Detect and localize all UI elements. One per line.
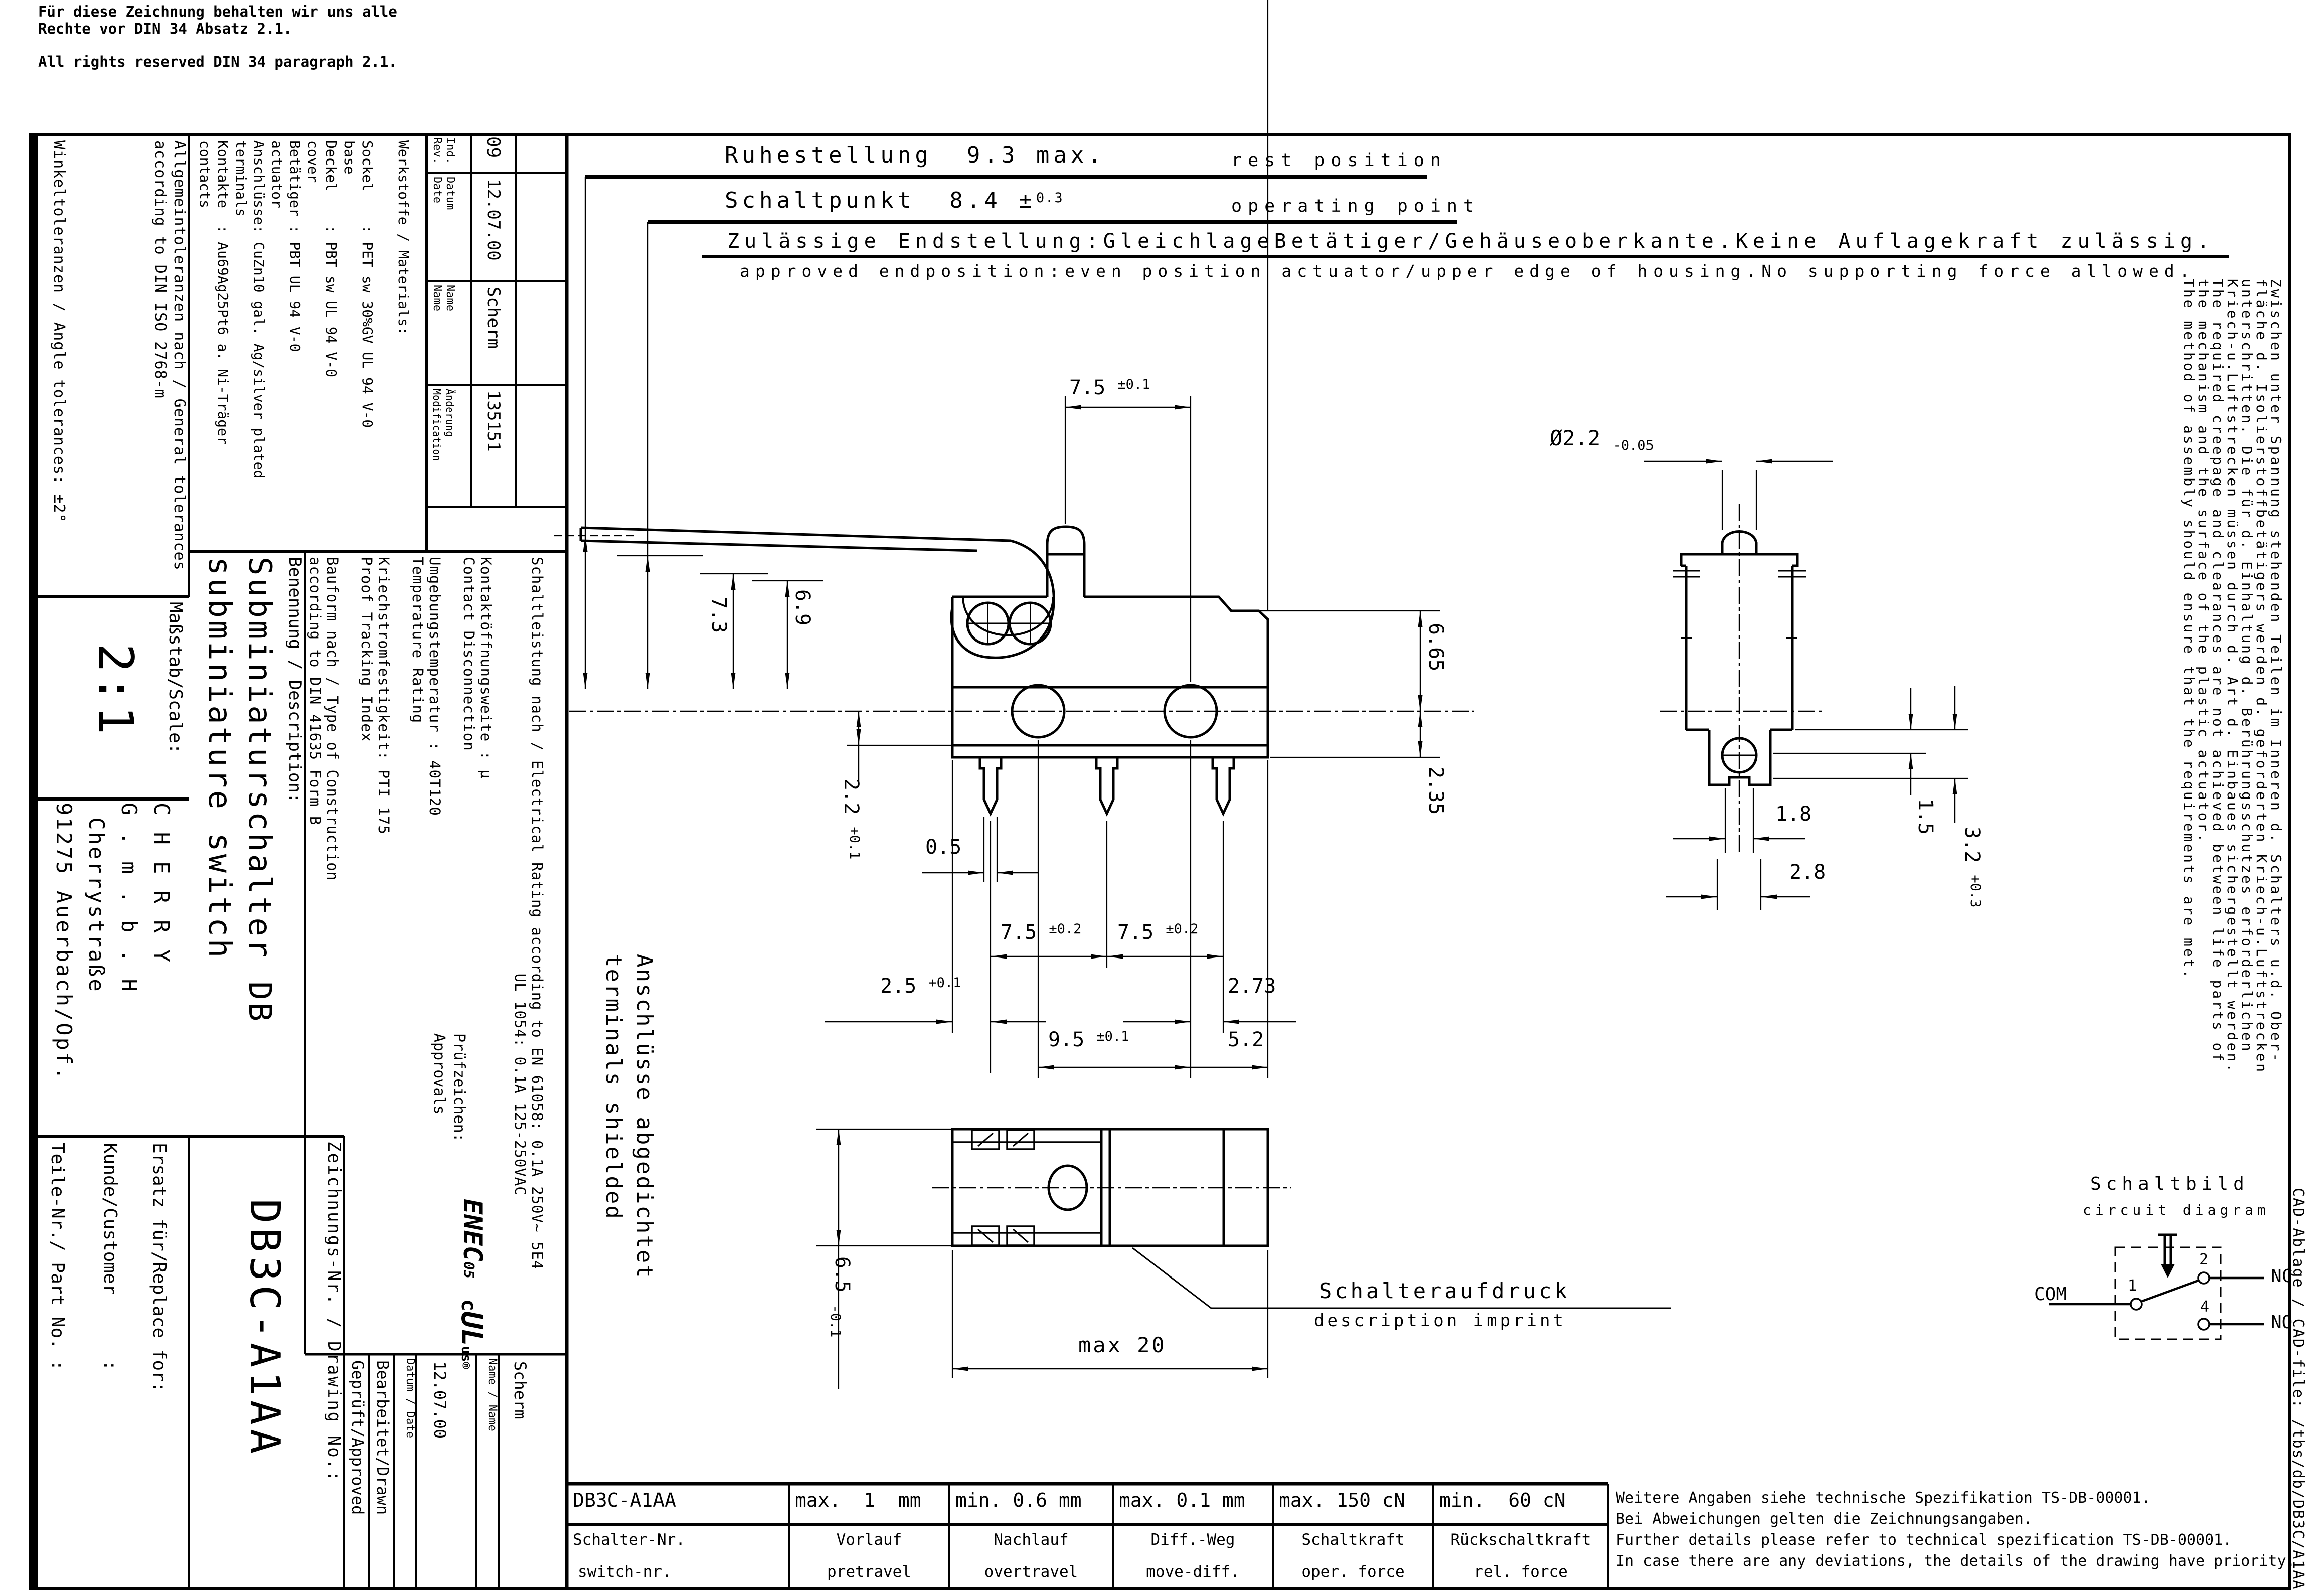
dim-2.5: 2.5 +0.1 <box>880 976 961 997</box>
spec-col4-header-en: move-diff. <box>1113 1564 1273 1580</box>
imprint-label-en: description imprint <box>1314 1312 1566 1330</box>
spec-col4-header-de: Diff.-Weg <box>1113 1532 1273 1548</box>
copyright-de-line1: Für diese Zeichnung behalten wir uns all… <box>38 4 397 19</box>
dim-2.73: 2.73 <box>1228 976 1276 997</box>
revision-name-label: Name Name <box>430 285 456 380</box>
drawn-name-value: Scherm <box>502 1361 530 1472</box>
engineering-drawing-page: { "copyright":{ "de1":"Für diese Zeichnu… <box>0 0 2308 1596</box>
dim-2.8: 2.8 <box>1789 862 1826 883</box>
part-no-label: Teile-Nr./ Part No. : <box>48 1143 68 1544</box>
dim-2.2: 2.2 +0.1 <box>834 778 863 929</box>
spec-col6-header-en: rel. force <box>1433 1564 1608 1580</box>
spec-col2-header-en: pretravel <box>789 1564 949 1580</box>
dim-dia-2.2: Ø2.2 -0.05 <box>1550 427 1654 449</box>
creepage-note: Zwischen unter Spannung stehenden Teilen… <box>2181 279 2283 1132</box>
approved-by-label: Geprüft/Approved <box>345 1360 367 1586</box>
endposition-note-de: Zulässige Endstellung:GleichlageBetätige… <box>727 231 2214 252</box>
company-address: C H E R R Y G . m . b . H Cherrystraße 9… <box>48 803 178 1129</box>
date-header: Datum / Date <box>396 1358 416 1484</box>
dim-max-20: max 20 <box>1078 1334 1167 1356</box>
circuit-title-de: Schaltbild <box>2090 1175 2249 1194</box>
dim-7.5-0.1: 7.5 ±0.1 <box>1069 377 1150 398</box>
circuit-diagram-lines <box>2049 1235 2264 1339</box>
spec-col6-header-de: Rückschaltkraft <box>1433 1532 1608 1548</box>
name-header: Name / Name <box>478 1358 499 1484</box>
spec-col3-header-de: Nachlauf <box>949 1532 1113 1548</box>
rest-position-label-de: Ruhestellung 9.3 max. <box>725 144 1105 167</box>
spec-switch-no-value: DB3C-A1AA <box>573 1491 676 1511</box>
spec-col1-header-de: Schalter-Nr. <box>573 1532 685 1548</box>
replace-for-label: Ersatz für/Replace for: <box>149 1143 170 1544</box>
bottom-witness-lines <box>816 1129 1268 1389</box>
dim-6.65: 6.65 <box>1423 623 1447 703</box>
revision-date-value: 12.07.00 <box>473 179 504 279</box>
approvals-label: Prüfzeichen: Approvals <box>429 1033 469 1194</box>
dim-0.5: 0.5 <box>925 837 961 858</box>
general-tolerances-note: Allgemeintoleranzen nach / General toler… <box>150 140 189 594</box>
technical-spec-note: Weitere Angaben siehe technische Spezifi… <box>1616 1488 2295 1572</box>
operating-point-label-de: Schaltpunkt 8.4 ±0.3 <box>725 189 1064 212</box>
operating-point-tolerance: 0.3 <box>1036 190 1064 206</box>
customer-label: Kunde/Customer : <box>100 1143 120 1544</box>
spec-col5-header-en: oper. force <box>1273 1564 1433 1580</box>
circuit-terminal-2: 2 <box>2199 1252 2208 1268</box>
spec-col5-header-de: Schaltkraft <box>1273 1532 1433 1548</box>
spec-col3-header-en: overtravel <box>949 1564 1113 1580</box>
circuit-terminal-1: 1 <box>2128 1278 2137 1294</box>
circuit-com-label: COM <box>2034 1285 2067 1304</box>
spec-overtravel-value: min. 0.6 mm <box>955 1491 1082 1511</box>
dim-7.5-0.2-a: 7.5 ±0.2 <box>1001 922 1081 943</box>
spec-relforce-value: min. 60 cN <box>1439 1491 1566 1511</box>
operating-point-label-en: operating point <box>1231 197 1480 216</box>
spec-col2-header-de: Vorlauf <box>789 1532 949 1548</box>
dim-9.5: 9.5 ±0.1 <box>1048 1029 1129 1050</box>
angle-tolerances-note: Winkeltoleranzen / Angle tolerances: ±2° <box>48 140 68 642</box>
part-title: Subminiaturschalter DB subminiature swit… <box>200 557 280 1108</box>
description-label: Benennung / Description: <box>286 557 305 873</box>
copyright-en: All rights reserved DIN 34 paragraph 2.1… <box>38 54 397 69</box>
revision-mod-value: 135151 <box>473 390 504 503</box>
dim-3.2: 3.2 +0.3 <box>1956 827 1984 967</box>
spec-operforce-value: max. 150 cN <box>1279 1491 1405 1511</box>
drawing-number-value: DB3C-A1AA <box>221 1199 288 1550</box>
rest-position-label-en: rest position <box>1231 151 1447 170</box>
enec-mark: ENEC05 <box>432 1199 487 1287</box>
imprint-label-de: Schalteraufdruck <box>1319 1280 1570 1302</box>
spec-col1-header-en: switch-nr. <box>578 1564 672 1580</box>
revision-index-value: 09 <box>473 136 504 172</box>
bottom-dim-lines <box>839 1129 1671 1369</box>
scale-label: Maßstab/Scale: <box>166 602 186 797</box>
front-witness-lines <box>554 396 1440 1078</box>
revision-index-label: Ind. Rev. <box>430 137 456 172</box>
materials-list: Werkstoffe / Materials: Sockel : PET sw … <box>196 140 412 547</box>
drawn-by-label: Bearbeitet/Drawn <box>370 1360 392 1586</box>
spec-movediff-value: max. 0.1 mm <box>1119 1491 1245 1511</box>
dim-1.8: 1.8 <box>1775 804 1811 825</box>
dim-6.9: 6.9 <box>790 589 814 660</box>
scale-value: 2:1 <box>80 644 143 784</box>
dim-7.5-0.2-b: 7.5 ±0.2 <box>1117 922 1198 943</box>
side-dim-lines <box>1644 461 1955 897</box>
revision-date-label: Datum Date <box>430 177 456 277</box>
spec-pretravel-value: max. 1 mm <box>795 1491 921 1511</box>
drawn-date-value: 12.07.00 <box>421 1361 449 1487</box>
circuit-terminal-4: 4 <box>2200 1299 2209 1315</box>
revision-name-value: Scherm <box>473 287 504 382</box>
dim-2.35: 2.35 <box>1423 766 1447 842</box>
dim-7.3: 7.3 <box>706 597 730 667</box>
terminals-shielded-note: Anschlüsse abgedichtet terminals shielde… <box>598 954 660 1305</box>
drawing-number-label: Zeichnungs-Nr. / Drawing No.: <box>325 1141 344 1522</box>
dim-5.2: 5.2 <box>1228 1029 1264 1050</box>
dim-6.5: 6.5 -0.1 <box>823 1256 854 1397</box>
circuit-title-en: circuit diagram <box>2083 1203 2270 1217</box>
endposition-note-en: approved endposition:even position actua… <box>740 263 2195 280</box>
front-view <box>581 527 1268 814</box>
revision-mod-label: Änderung Modification <box>430 389 456 504</box>
copyright-de-line2: Rechte vor DIN 34 Absatz 2.1. <box>38 21 292 36</box>
dim-1.5: 1.5 <box>1913 799 1937 869</box>
